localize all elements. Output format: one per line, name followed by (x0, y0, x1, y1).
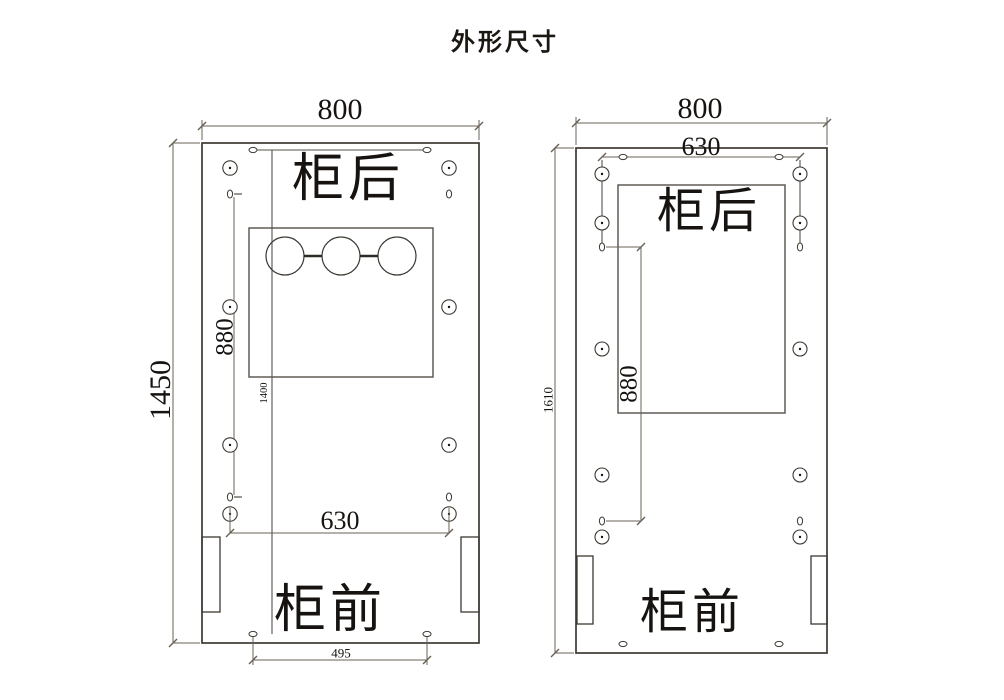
left-label-cabinet-back: 柜后 (292, 154, 404, 206)
left-dim-800-text: 800 (318, 95, 363, 125)
left-panel-holes (223, 161, 456, 521)
right-dim-800-text: 800 (678, 94, 723, 124)
sheet-title: 外形尺寸 (451, 31, 559, 55)
left-cutout-box (249, 228, 433, 377)
left-dim-630-text: 630 (321, 508, 360, 534)
left-dim-1400-text: 1400 (260, 383, 271, 404)
left-panel-outline (202, 143, 479, 643)
right-label-cabinet-front: 柜前 (640, 589, 744, 637)
left-dim-880-text: 880 (213, 318, 238, 356)
right-dim-630-text: 630 (682, 134, 721, 160)
right-dim-880-text: 880 (617, 365, 642, 403)
right-dim-1610-text: 1610 (542, 387, 555, 413)
left-label-cabinet-front: 柜前 (274, 585, 386, 637)
right-panel-holes (595, 167, 807, 647)
drawing-sheet: 外形尺寸 800 1450 880 1400 630 495 柜后 柜前 800… (0, 0, 1004, 700)
linework-canvas (0, 0, 1004, 700)
left-dim-495-text: 495 (331, 647, 351, 660)
left-dim-1450-text: 1450 (146, 360, 176, 420)
right-label-cabinet-back: 柜后 (657, 188, 761, 236)
